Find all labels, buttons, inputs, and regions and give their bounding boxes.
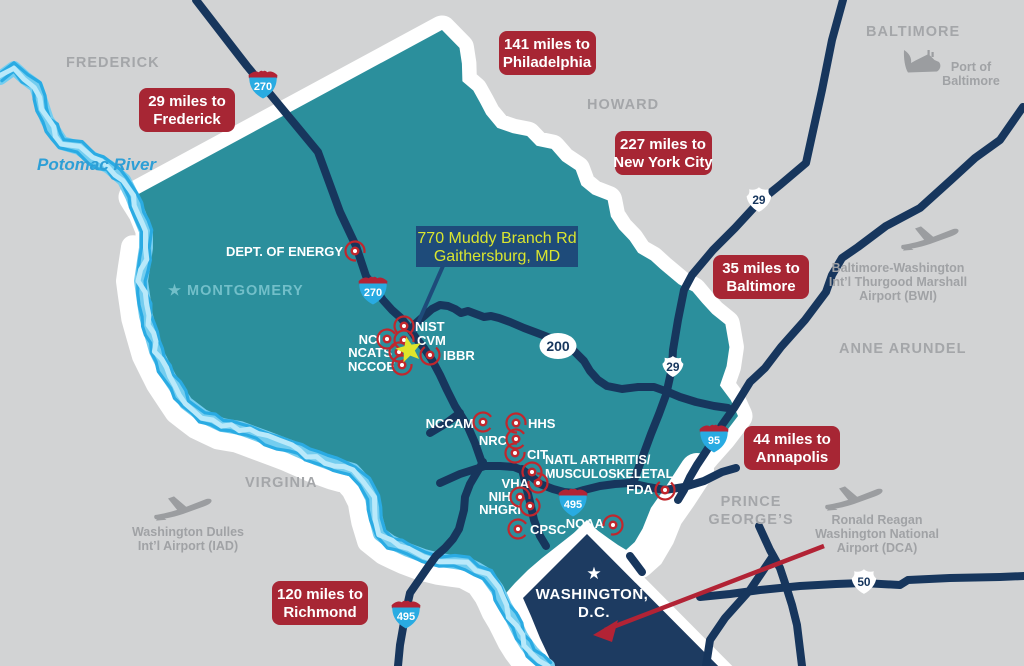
svg-text:VIRGINIA: VIRGINIA: [245, 475, 317, 491]
svg-text:New York City: New York City: [613, 154, 713, 171]
svg-text:Frederick: Frederick: [153, 111, 221, 128]
svg-text:Baltimore: Baltimore: [726, 278, 795, 295]
svg-text:Int’l Thurgood Marshall: Int’l Thurgood Marshall: [829, 275, 967, 289]
svg-text:MUSCULOSKELETAL: MUSCULOSKELETAL: [545, 467, 674, 481]
svg-text:WASHINGTON,: WASHINGTON,: [536, 586, 649, 603]
svg-text:NCATS: NCATS: [348, 345, 392, 360]
svg-text:★: ★: [586, 564, 601, 583]
svg-text:Airport (BWI): Airport (BWI): [859, 289, 937, 303]
svg-text:495: 495: [564, 499, 582, 511]
svg-text:★ MONTGOMERY: ★ MONTGOMERY: [168, 283, 304, 299]
svg-text:BALTIMORE: BALTIMORE: [866, 24, 960, 40]
svg-text:HHS: HHS: [528, 416, 556, 431]
svg-text:227 miles to: 227 miles to: [620, 136, 706, 153]
svg-text:D.C.: D.C.: [578, 604, 610, 621]
svg-text:770 Muddy Branch Rd: 770 Muddy Branch Rd: [417, 230, 576, 247]
svg-text:Airport (DCA): Airport (DCA): [837, 541, 918, 555]
svg-text:Richmond: Richmond: [283, 604, 356, 621]
svg-text:120 miles to: 120 miles to: [277, 586, 363, 603]
svg-text:DEPT. OF ENERGY: DEPT. OF ENERGY: [226, 244, 343, 259]
svg-text:Int’l Airport (IAD): Int’l Airport (IAD): [138, 539, 238, 553]
svg-text:29: 29: [666, 360, 680, 374]
svg-text:270: 270: [364, 287, 382, 299]
svg-text:35 miles to: 35 miles to: [722, 260, 800, 277]
svg-text:Washington Dulles: Washington Dulles: [132, 525, 244, 539]
svg-text:50: 50: [857, 575, 871, 589]
svg-text:Gaithersburg, MD: Gaithersburg, MD: [434, 248, 560, 265]
svg-text:Washington National: Washington National: [815, 527, 939, 541]
svg-text:Port of: Port of: [951, 60, 992, 74]
svg-text:141 miles to: 141 miles to: [504, 36, 590, 53]
svg-text:GEORGE’S: GEORGE’S: [708, 512, 793, 528]
svg-text:CVM: CVM: [417, 333, 446, 348]
svg-text:270: 270: [254, 81, 272, 93]
svg-text:29: 29: [752, 193, 766, 207]
svg-text:Ronald Reagan: Ronald Reagan: [832, 513, 923, 527]
svg-text:FREDERICK: FREDERICK: [66, 55, 160, 71]
svg-text:495: 495: [397, 611, 415, 623]
svg-text:Potomac River: Potomac River: [37, 155, 157, 174]
svg-text:PRINCE: PRINCE: [721, 494, 782, 510]
svg-text:95: 95: [708, 435, 720, 447]
svg-text:NCCOE: NCCOE: [348, 359, 395, 374]
svg-text:FDA: FDA: [626, 482, 653, 497]
svg-text:NCCAM: NCCAM: [426, 416, 474, 431]
svg-text:Baltimore-Washington: Baltimore-Washington: [832, 261, 965, 275]
svg-text:Baltimore: Baltimore: [942, 74, 1000, 88]
svg-text:Annapolis: Annapolis: [756, 449, 829, 466]
svg-text:44 miles to: 44 miles to: [753, 431, 831, 448]
svg-text:IBBR: IBBR: [443, 348, 475, 363]
svg-text:NRC: NRC: [479, 433, 508, 448]
svg-text:NOAA: NOAA: [566, 516, 605, 531]
svg-text:Philadelphia: Philadelphia: [503, 54, 592, 71]
svg-text:ANNE ARUNDEL: ANNE ARUNDEL: [839, 341, 966, 357]
svg-text:CPSC: CPSC: [530, 522, 567, 537]
svg-text:29 miles to: 29 miles to: [148, 93, 226, 110]
svg-text:200: 200: [546, 338, 570, 354]
svg-text:HOWARD: HOWARD: [587, 97, 659, 113]
svg-text:NATL ARTHRITIS/: NATL ARTHRITIS/: [545, 453, 651, 467]
svg-text:NIST: NIST: [415, 319, 445, 334]
